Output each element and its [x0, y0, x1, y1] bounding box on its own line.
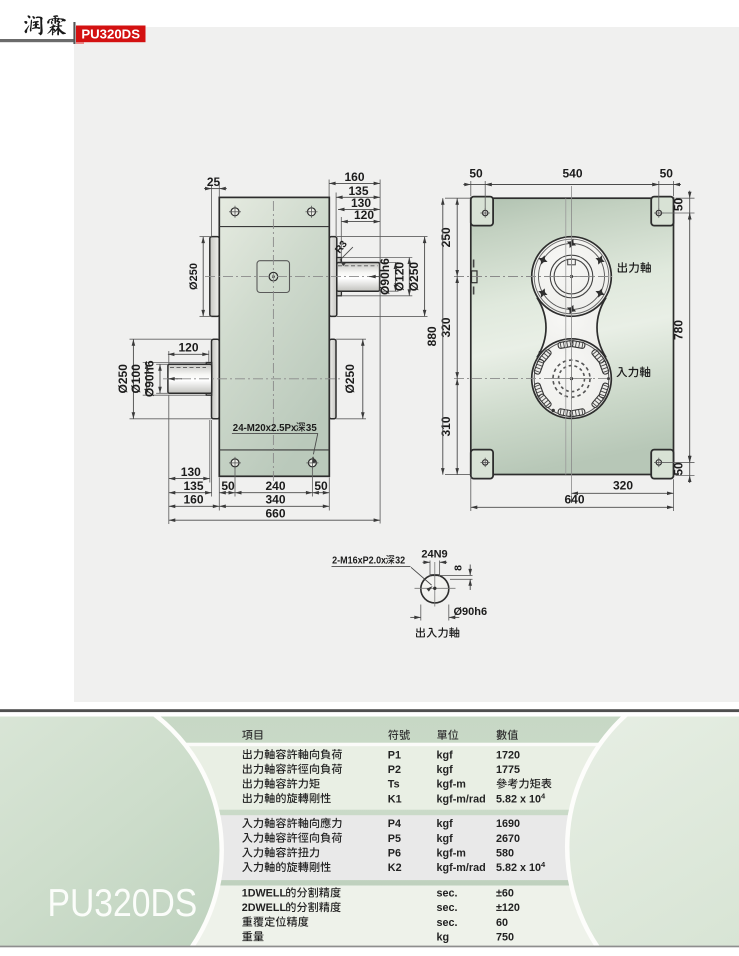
svg-text:Ø250: Ø250	[407, 262, 421, 292]
svg-text:130: 130	[181, 465, 201, 479]
svg-text:Ts: Ts	[388, 779, 400, 791]
svg-text:35: 35	[306, 423, 317, 434]
svg-text:K2: K2	[388, 862, 402, 874]
svg-text:250: 250	[439, 227, 453, 247]
svg-text:540: 540	[562, 167, 582, 181]
svg-text:±60: ±60	[496, 888, 514, 900]
svg-text:5.82 x 104: 5.82 x 104	[496, 860, 546, 874]
svg-text:50: 50	[314, 479, 328, 493]
svg-text:750: 750	[496, 932, 514, 944]
svg-text:kgf-m: kgf-m	[437, 848, 466, 860]
svg-text:135: 135	[183, 479, 203, 493]
svg-text:2DWELL: 2DWELL	[242, 902, 287, 914]
svg-text:kgf-m/rad: kgf-m/rad	[437, 793, 486, 805]
svg-text:2-M16xP2.0x: 2-M16xP2.0x	[332, 555, 387, 567]
svg-text:25: 25	[207, 175, 221, 189]
svg-text:880: 880	[425, 326, 439, 346]
svg-text:1720: 1720	[496, 749, 520, 761]
svg-text:sec.: sec.	[437, 888, 458, 900]
svg-text:PU320DS: PU320DS	[48, 881, 198, 925]
svg-text:kgf-m: kgf-m	[437, 779, 466, 791]
svg-text:kgf: kgf	[437, 764, 454, 776]
svg-text:24N9: 24N9	[421, 549, 447, 561]
svg-text:640: 640	[564, 493, 584, 507]
svg-text:780: 780	[672, 320, 686, 340]
svg-text:±120: ±120	[496, 902, 520, 914]
svg-text:1690: 1690	[496, 818, 520, 830]
svg-text:660: 660	[265, 506, 285, 520]
svg-text:1775: 1775	[496, 764, 520, 776]
svg-text:50: 50	[660, 167, 674, 181]
svg-text:160: 160	[344, 170, 364, 184]
svg-text:580: 580	[496, 848, 514, 860]
svg-text:Ø250: Ø250	[188, 263, 200, 290]
svg-text:120: 120	[354, 208, 374, 222]
svg-text:340: 340	[265, 493, 285, 507]
svg-text:50: 50	[672, 198, 686, 212]
svg-text:Ø250: Ø250	[343, 364, 357, 394]
svg-text:8: 8	[453, 565, 465, 571]
svg-text:PU320DS: PU320DS	[81, 27, 140, 42]
svg-text:32: 32	[395, 555, 405, 567]
svg-text:50: 50	[672, 462, 686, 476]
svg-text:kgf: kgf	[437, 749, 454, 761]
svg-text:Ø250: Ø250	[116, 364, 130, 394]
svg-text:320: 320	[613, 478, 633, 492]
svg-text:5.82 x 104: 5.82 x 104	[496, 791, 546, 805]
svg-text:Ø90h6: Ø90h6	[142, 360, 156, 397]
svg-text:P4: P4	[388, 818, 401, 830]
svg-text:P1: P1	[388, 749, 401, 761]
svg-text:kg: kg	[437, 932, 450, 944]
svg-text:24-M20x2.5Px: 24-M20x2.5Px	[233, 423, 297, 434]
svg-text:120: 120	[178, 341, 198, 355]
svg-text:P2: P2	[388, 764, 401, 776]
svg-text:240: 240	[265, 479, 285, 493]
svg-text:K1: K1	[388, 793, 402, 805]
svg-text:1DWELL: 1DWELL	[242, 888, 287, 900]
svg-text:Ø120: Ø120	[392, 262, 406, 292]
svg-text:50: 50	[221, 479, 235, 493]
svg-text:P6: P6	[388, 848, 401, 860]
svg-text:kgf: kgf	[437, 833, 454, 845]
svg-text:Ø100: Ø100	[129, 364, 143, 394]
svg-text:Ø90h6: Ø90h6	[454, 606, 488, 618]
svg-text:P5: P5	[388, 833, 401, 845]
svg-text:2670: 2670	[496, 833, 520, 845]
svg-text:kgf-m/rad: kgf-m/rad	[437, 862, 486, 874]
svg-text:60: 60	[496, 917, 508, 929]
svg-text:sec.: sec.	[437, 917, 458, 929]
svg-text:kgf: kgf	[437, 818, 454, 830]
svg-text:310: 310	[439, 416, 453, 436]
svg-text:160: 160	[183, 493, 203, 507]
svg-text:sec.: sec.	[437, 902, 458, 914]
svg-text:320: 320	[439, 317, 453, 337]
svg-text:50: 50	[469, 167, 483, 181]
